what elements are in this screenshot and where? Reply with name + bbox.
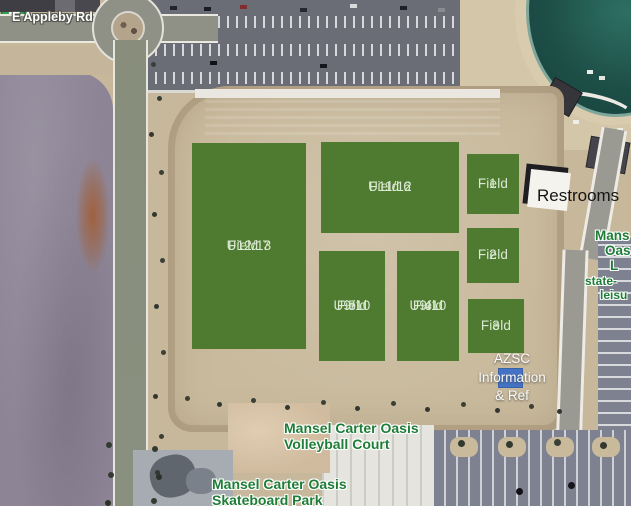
field-overlay-6: U11/12 Field 6 [321, 142, 459, 233]
clipped-park-label: Oas [605, 243, 631, 258]
field-edge-shrubs [185, 396, 190, 401]
picnic-tables [573, 120, 579, 124]
field-label: 3 [492, 317, 500, 336]
road-name-label: E Appleby Rd [12, 10, 93, 24]
poi-line: Mansel Carter Oasis [284, 421, 419, 437]
field-overlay-2: Field 2 [467, 228, 519, 283]
clipped-park-label: state- [585, 274, 617, 288]
azsc-line: AZSC [452, 350, 572, 369]
parking-stripes [155, 44, 455, 56]
graded-dirt [205, 100, 500, 138]
field-overlay-7: U12/13 Field 7 [192, 143, 306, 349]
parked-cars [170, 6, 177, 10]
poi-line: Skateboard Park [212, 493, 347, 506]
poi-line: Mansel Carter Oasis [212, 477, 347, 493]
field-overlay-1: Field 1 [467, 154, 519, 214]
field-label: 2 [489, 246, 497, 265]
satellite-rust-streak [76, 158, 110, 273]
azsc-line: Information [452, 369, 572, 388]
field-label: Field 6 [369, 178, 411, 197]
skatepark-label: Mansel Carter Oasis Skateboard Park [212, 477, 347, 506]
field-overlay-5: U9/10 Field 5 [319, 251, 385, 361]
landscape-island [592, 437, 620, 457]
field-overlay-3: Field 3 [468, 299, 524, 353]
parking-stripes [155, 72, 455, 84]
field-label: 1 [489, 175, 497, 194]
map-canvas[interactable]: U12/13 Field 7 U11/12 Field 6 U9/10 Fiel… [0, 0, 631, 506]
azsc-line: & Ref [452, 387, 572, 406]
landscape-island [546, 437, 574, 457]
clipped-park-label: L [610, 258, 618, 273]
field-label: 4 [424, 297, 432, 315]
field-overlay-4: U9/10 Field 4 [397, 251, 459, 361]
azsc-info-label: AZSC Information & Ref [452, 350, 572, 406]
island-trees [458, 440, 465, 447]
landscape-island [498, 437, 526, 457]
poi-line: Volleyball Court [284, 437, 419, 453]
restrooms-label: Restrooms [537, 186, 619, 206]
road-west [113, 40, 148, 506]
volleyball-court-label: Mansel Carter Oasis Volleyball Court [284, 421, 419, 452]
satellite-dirt-lot-west [0, 72, 113, 506]
roadside-shrubs [151, 62, 156, 67]
sidewalk [195, 89, 500, 98]
field-label: Field 7 [228, 237, 270, 256]
roadside-trees [106, 442, 112, 448]
landscape-island [450, 437, 478, 457]
clipped-park-label: Mans [595, 228, 630, 243]
field-label: 5 [348, 297, 356, 315]
clipped-park-label: leisu [600, 288, 627, 302]
satellite-dirt-strip [0, 45, 113, 75]
